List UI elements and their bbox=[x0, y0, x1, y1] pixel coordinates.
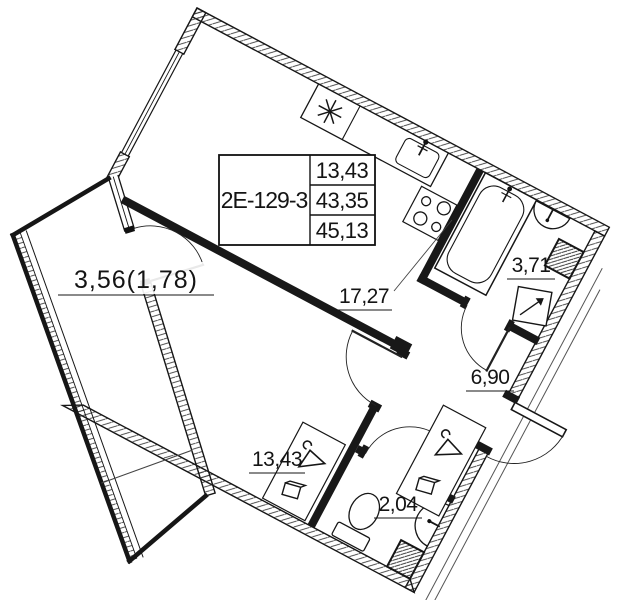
window-left-wall bbox=[120, 49, 183, 156]
svg-text:6,90: 6,90 bbox=[471, 366, 510, 389]
wall-left-upper bbox=[175, 8, 206, 54]
svg-text:3,56(1,78): 3,56(1,78) bbox=[74, 266, 198, 294]
electrical-panel-icon bbox=[513, 287, 552, 326]
label-balcony: 3,56(1,78) bbox=[52, 262, 220, 295]
label-wc: 2,04 bbox=[374, 493, 422, 518]
label-bathroom: 3,71 bbox=[507, 254, 555, 279]
svg-text:3,71: 3,71 bbox=[512, 254, 551, 277]
floor-plan-page: 2Е-129-3 13,43 43,35 45,13 17,27 13,43 6… bbox=[0, 0, 623, 600]
bedroom-wardrobe bbox=[263, 422, 346, 520]
entrance-door-leaf bbox=[511, 402, 566, 436]
title-row-0: 13,43 bbox=[316, 158, 369, 183]
svg-text:13,43: 13,43 bbox=[252, 448, 302, 471]
unit-code: 2Е-129-3 bbox=[221, 187, 308, 213]
label-bedroom: 13,43 bbox=[249, 448, 305, 473]
wall-bathroom-bottom-right bbox=[508, 323, 540, 345]
label-hallway: 6,90 bbox=[466, 366, 514, 391]
floor-plan-canvas: 2Е-129-3 13,43 43,35 45,13 17,27 13,43 6… bbox=[0, 0, 623, 600]
svg-text:17,27: 17,27 bbox=[339, 285, 389, 308]
bathroom-door bbox=[444, 306, 509, 371]
balcony-wall-top bbox=[13, 151, 109, 262]
title-block: 2Е-129-3 13,43 43,35 45,13 bbox=[219, 155, 375, 245]
entrance-door bbox=[486, 402, 566, 483]
title-row-1: 43,35 bbox=[316, 188, 369, 213]
balcony-wall-bottom bbox=[129, 479, 205, 579]
title-row-2: 45,13 bbox=[316, 218, 369, 243]
label-living-kitchen: 17,27 bbox=[336, 285, 392, 310]
svg-text:2,04: 2,04 bbox=[379, 493, 419, 516]
plan-rotated-group bbox=[0, 0, 623, 600]
